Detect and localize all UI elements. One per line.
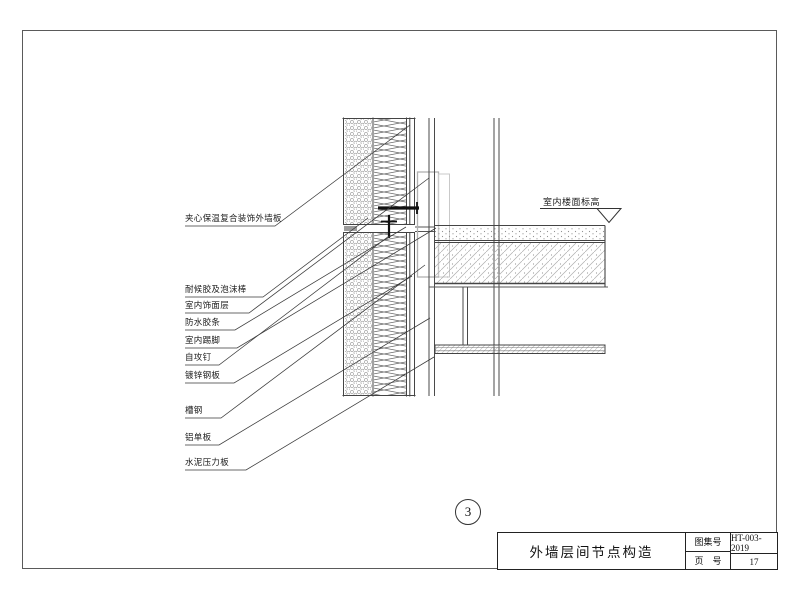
floor-slab bbox=[429, 226, 608, 288]
callout-aluminum-panel: 铝单板 bbox=[185, 432, 211, 443]
drawing-sheet: 夹心保温复合装饰外墙板 耐候胶及泡沫棒 室内饰面层 防水胶条 室内踢脚 自攻钉 … bbox=[0, 0, 800, 600]
detail-number-bubble: 3 bbox=[455, 499, 481, 525]
page-no-label: 页 号 bbox=[686, 552, 730, 570]
callout-interior-finish: 室内饰面层 bbox=[185, 300, 229, 311]
callout-weather-sealant: 耐候胶及泡沫棒 bbox=[185, 284, 247, 295]
floor-elevation-label: 室内楼面标高 bbox=[543, 195, 600, 208]
atlas-no-label: 图集号 bbox=[686, 533, 730, 552]
callout-sandwich-panel: 夹心保温复合装饰外墙板 bbox=[185, 213, 282, 224]
callout-channel-steel: 槽钢 bbox=[185, 405, 203, 416]
callout-cement-board: 水泥压力板 bbox=[185, 457, 229, 468]
drawing-title: 外墙层间节点构造 bbox=[498, 533, 686, 569]
detail-drawing bbox=[0, 0, 800, 600]
sandwich-wall-panel bbox=[343, 118, 415, 396]
title-block: 外墙层间节点构造 图集号 页 号 HT-003-2019 17 bbox=[497, 532, 778, 570]
callout-screw: 自攻钉 bbox=[185, 352, 211, 363]
atlas-no-value: HT-003-2019 bbox=[731, 533, 777, 554]
callout-waterproof-strip: 防水胶条 bbox=[185, 317, 220, 328]
page-no-value: 17 bbox=[731, 554, 777, 569]
suspended-ceiling bbox=[435, 287, 605, 354]
elevation-mark bbox=[540, 209, 621, 223]
callout-galvanized-plate: 镀锌钢板 bbox=[185, 370, 220, 381]
title-block-value-column: HT-003-2019 17 bbox=[731, 533, 777, 569]
callout-skirting: 室内踢脚 bbox=[185, 335, 220, 346]
title-block-label-column: 图集号 页 号 bbox=[686, 533, 731, 569]
